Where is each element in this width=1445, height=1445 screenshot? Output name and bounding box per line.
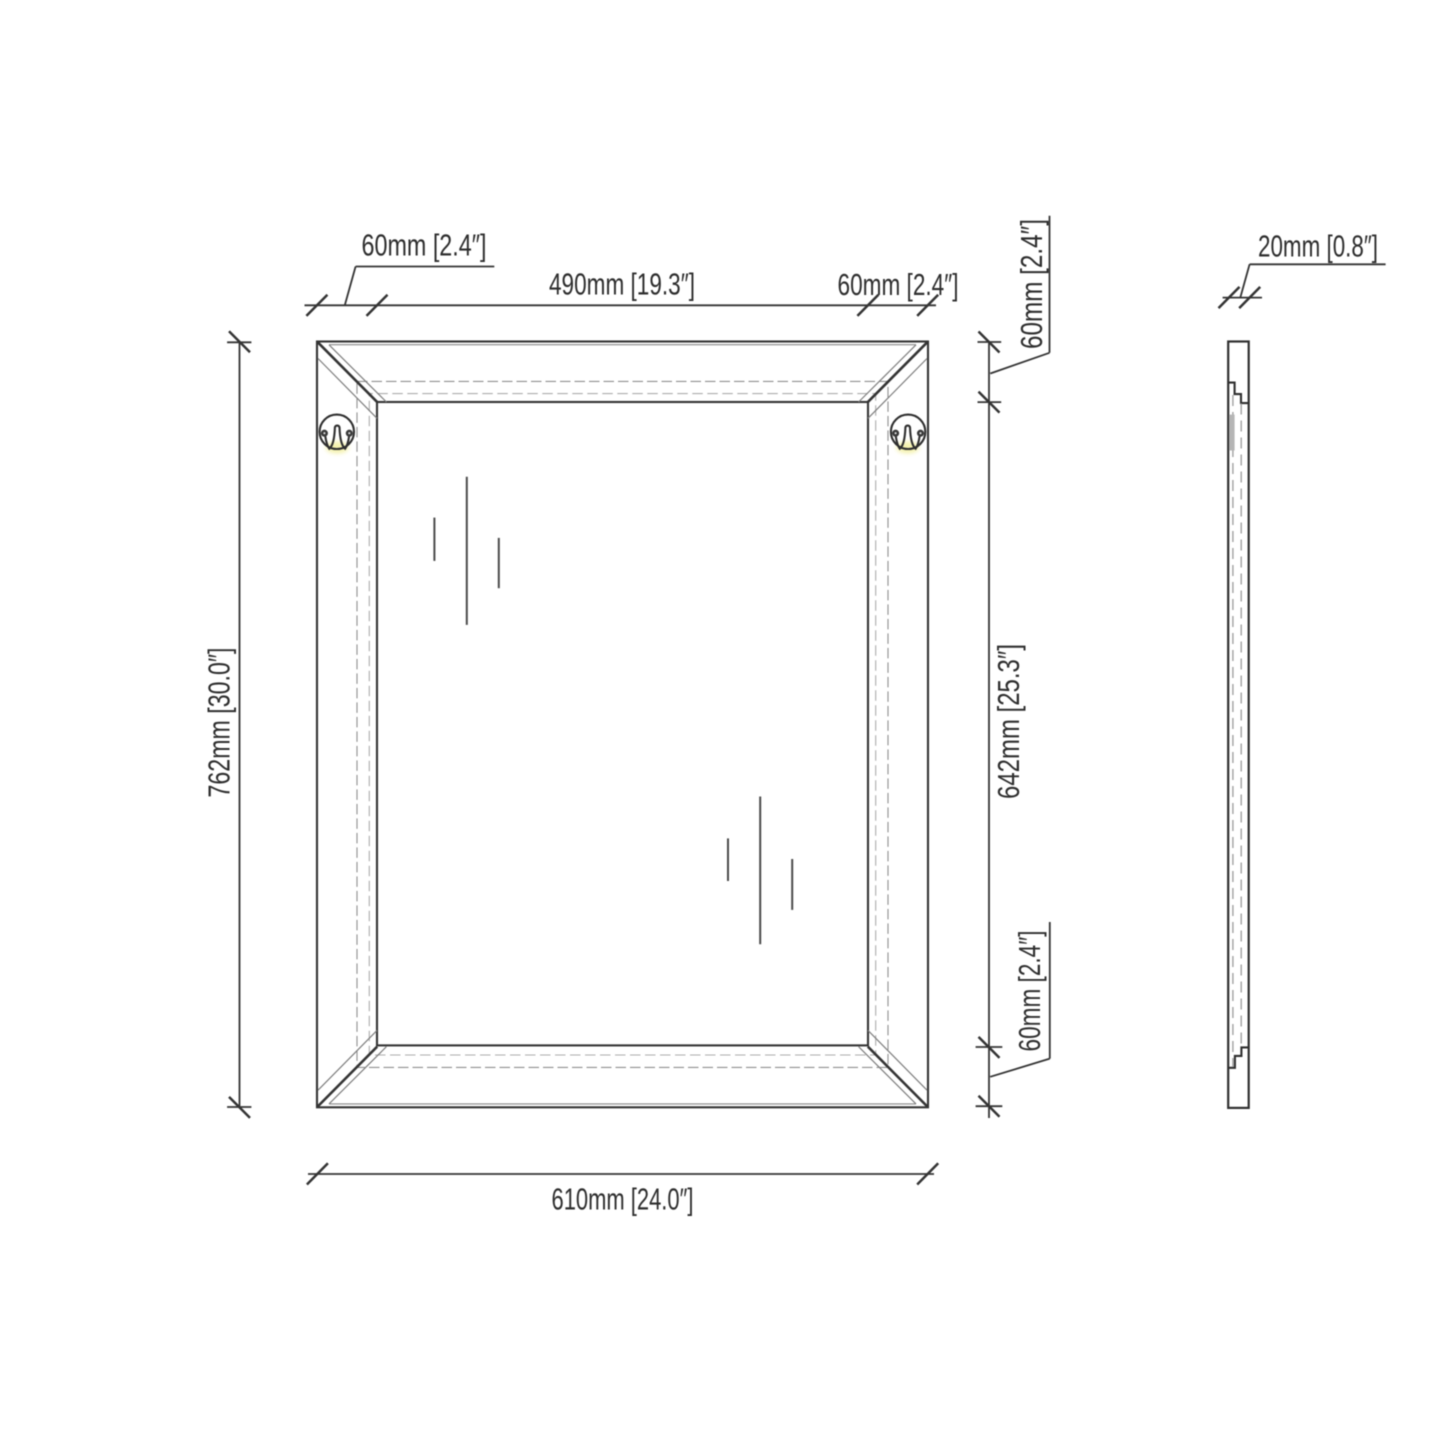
svg-text:610mm [24.0″]: 610mm [24.0″] — [552, 1182, 694, 1217]
svg-text:60mm [2.4″]: 60mm [2.4″] — [1014, 219, 1049, 349]
svg-text:762mm [30.0″]: 762mm [30.0″] — [202, 648, 237, 798]
svg-text:60mm [2.4″]: 60mm [2.4″] — [1012, 931, 1047, 1052]
svg-text:20mm [0.8″]: 20mm [0.8″] — [1258, 229, 1378, 264]
svg-text:642mm [25.3″]: 642mm [25.3″] — [991, 644, 1026, 799]
svg-text:490mm [19.3″]: 490mm [19.3″] — [549, 267, 695, 302]
svg-text:60mm [2.4″]: 60mm [2.4″] — [362, 228, 487, 263]
svg-text:60mm [2.4″]: 60mm [2.4″] — [838, 267, 959, 302]
